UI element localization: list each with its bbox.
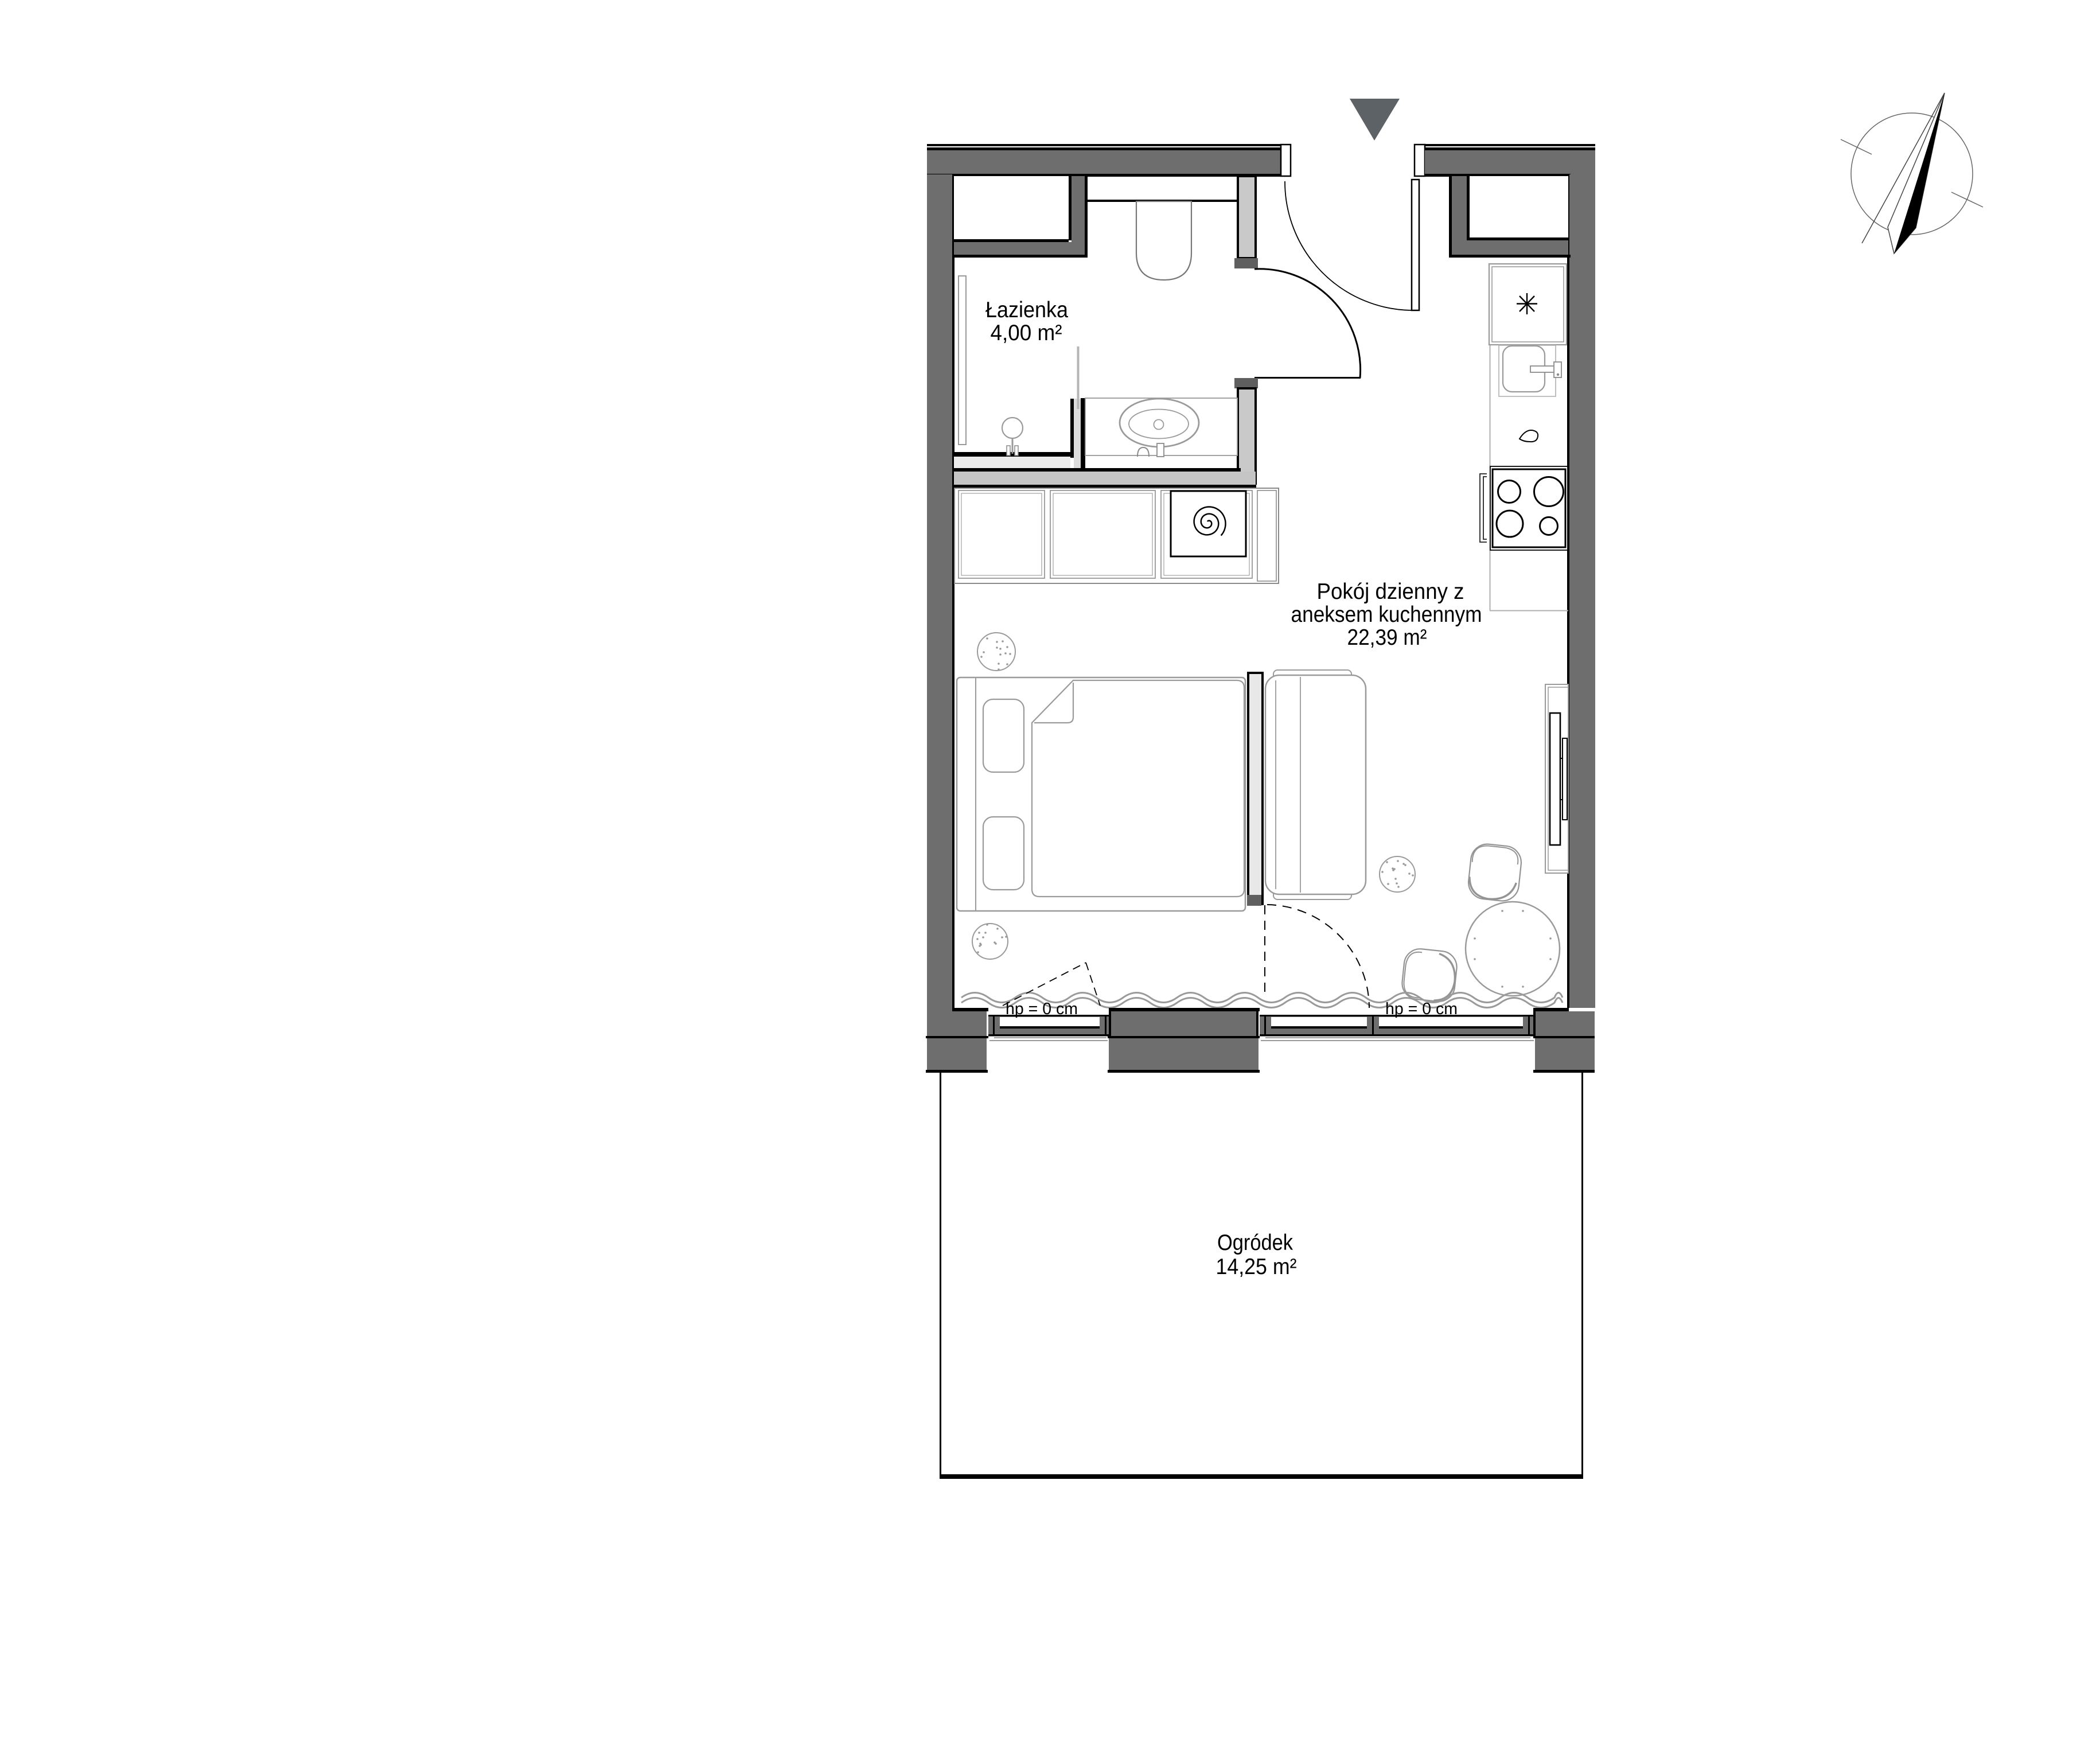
svg-text:hp = 0 cm: hp = 0 cm bbox=[1006, 1000, 1078, 1018]
svg-text:14,25 m²: 14,25 m² bbox=[1216, 1255, 1297, 1279]
svg-text:22,39 m²: 22,39 m² bbox=[1347, 625, 1427, 650]
svg-text:hp = 0 cm: hp = 0 cm bbox=[1385, 1000, 1458, 1018]
svg-text:Ogródek: Ogródek bbox=[1217, 1230, 1293, 1255]
svg-text:4,00 m²: 4,00 m² bbox=[991, 321, 1062, 345]
svg-text:Pokój dzienny z: Pokój dzienny z bbox=[1317, 579, 1464, 604]
svg-text:Łazienka: Łazienka bbox=[985, 298, 1068, 322]
svg-text:aneksem kuchennym: aneksem kuchennym bbox=[1291, 602, 1482, 627]
